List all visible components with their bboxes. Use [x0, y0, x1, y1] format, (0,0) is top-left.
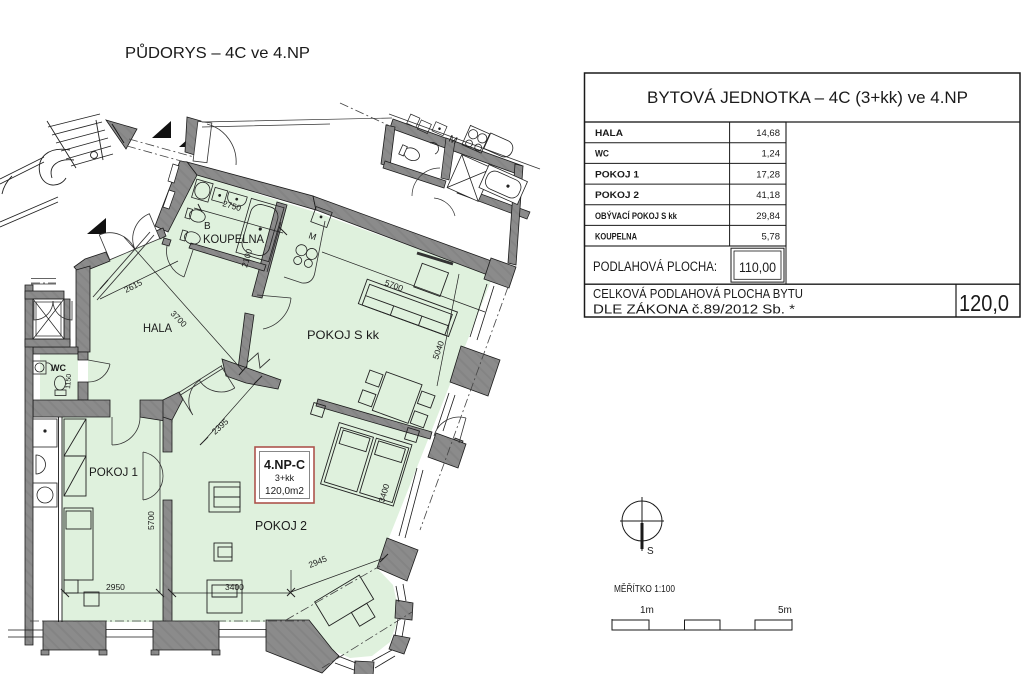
- svg-text:4.NP-C: 4.NP-C: [264, 458, 305, 472]
- svg-text:29,84: 29,84: [756, 211, 780, 222]
- svg-text:120,0m2: 120,0m2: [265, 486, 304, 497]
- svg-text:110,00: 110,00: [739, 260, 776, 275]
- svg-text:17,28: 17,28: [756, 169, 780, 180]
- svg-text:WC: WC: [595, 149, 609, 159]
- svg-text:120,0: 120,0: [959, 290, 1009, 316]
- svg-text:KOUPELNA: KOUPELNA: [203, 232, 264, 246]
- svg-text:HALA: HALA: [595, 128, 624, 138]
- svg-text:KOUPELNA: KOUPELNA: [595, 231, 637, 241]
- svg-text:2950: 2950: [106, 582, 125, 592]
- svg-text:1,24: 1,24: [762, 149, 781, 160]
- svg-text:MĚŘÍTKO 1:100: MĚŘÍTKO 1:100: [614, 582, 675, 595]
- svg-text:B: B: [204, 221, 211, 232]
- svg-text:POKOJ S kk: POKOJ S kk: [307, 328, 380, 342]
- svg-text:14,68: 14,68: [756, 128, 780, 139]
- svg-text:1m: 1m: [640, 605, 654, 616]
- svg-text:5700: 5700: [146, 511, 156, 530]
- svg-text:PŮDORYS – 4C ve 4.NP: PŮDORYS – 4C ve 4.NP: [125, 43, 310, 62]
- svg-text:41,18: 41,18: [756, 190, 780, 201]
- svg-text:1150: 1150: [65, 374, 73, 390]
- svg-text:POKOJ 1: POKOJ 1: [89, 465, 138, 479]
- svg-text:BYTOVÁ JEDNOTKA – 4C (3+kk) ve: BYTOVÁ JEDNOTKA – 4C (3+kk) ve 4.NP: [647, 88, 968, 107]
- svg-text:5,78: 5,78: [762, 231, 781, 242]
- svg-text:HALA: HALA: [143, 321, 172, 335]
- svg-text:3+kk: 3+kk: [275, 473, 295, 483]
- svg-text:POKOJ 2: POKOJ 2: [255, 519, 307, 533]
- svg-text:CELKOVÁ PODLAHOVÁ PLOCHA BYTU: CELKOVÁ PODLAHOVÁ PLOCHA BYTU: [593, 286, 803, 301]
- svg-text:PODLAHOVÁ PLOCHA:: PODLAHOVÁ PLOCHA:: [593, 259, 717, 274]
- svg-text:POKOJ 2: POKOJ 2: [595, 190, 639, 200]
- svg-text:3400: 3400: [225, 582, 244, 592]
- svg-text:POKOJ 1: POKOJ 1: [595, 169, 639, 179]
- svg-text:OBÝVACÍ POKOJ S kk: OBÝVACÍ POKOJ S kk: [595, 210, 678, 221]
- svg-text:S: S: [647, 546, 654, 557]
- svg-text:5m: 5m: [778, 605, 792, 616]
- svg-text:WC: WC: [51, 363, 66, 373]
- svg-text:DLE ZÁKONA č.89/2012 Sb. *: DLE ZÁKONA č.89/2012 Sb. *: [593, 302, 795, 317]
